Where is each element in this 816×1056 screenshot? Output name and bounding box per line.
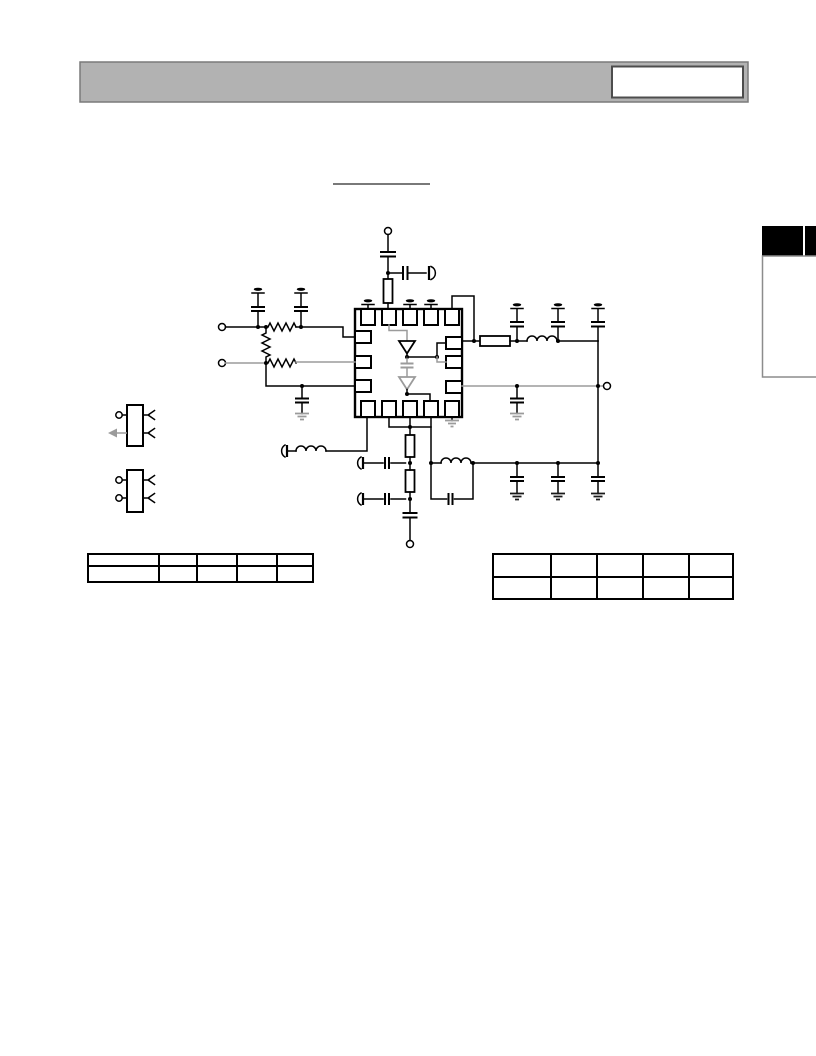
supply-terminal bbox=[385, 228, 392, 235]
page-header bbox=[80, 62, 748, 102]
table-cell bbox=[278, 555, 314, 567]
resistor bbox=[406, 435, 415, 457]
bottom-left-inductor-feed bbox=[282, 417, 367, 457]
shunt-resistor bbox=[262, 327, 270, 363]
table-cell bbox=[644, 555, 690, 578]
resistor bbox=[406, 470, 415, 492]
ic-right-pads bbox=[446, 337, 462, 393]
arrow-icon bbox=[108, 429, 117, 438]
bottom-feed-chain bbox=[358, 417, 431, 548]
table-cell bbox=[198, 567, 238, 583]
output-shunt-capacitor bbox=[510, 386, 524, 420]
ic-package bbox=[355, 296, 474, 417]
series-resistor bbox=[480, 336, 510, 346]
spec-table-right bbox=[492, 553, 734, 600]
section-tab-block bbox=[762, 226, 816, 256]
decoupling-cap-bank-top bbox=[510, 303, 605, 341]
input-bypass-cap-1 bbox=[251, 288, 265, 327]
pin-chevrons bbox=[143, 476, 155, 503]
coupling-cap-branch-2 bbox=[358, 493, 406, 505]
sidebar-box bbox=[763, 256, 816, 377]
pin-terminal bbox=[116, 412, 122, 418]
table-cell bbox=[552, 555, 598, 578]
section-tab bbox=[762, 226, 816, 377]
top-supply-feed bbox=[380, 228, 435, 310]
series-resistor-2 bbox=[268, 359, 296, 367]
input-terminal-1 bbox=[219, 324, 226, 331]
pin-chevrons bbox=[143, 411, 155, 438]
table-cell bbox=[160, 567, 198, 583]
ground-icon bbox=[510, 414, 524, 420]
ic-left-pads bbox=[355, 331, 371, 392]
header-revision-box bbox=[612, 67, 743, 98]
header-connector-1 bbox=[108, 405, 155, 446]
input-terminal-2 bbox=[219, 360, 226, 367]
ground-icon bbox=[445, 421, 459, 427]
spec-table-left bbox=[87, 553, 314, 583]
table-cell bbox=[598, 578, 644, 600]
table-cell bbox=[690, 555, 734, 578]
rf-probe-point bbox=[429, 266, 435, 280]
ic-top-pads bbox=[361, 309, 459, 325]
ground-icon bbox=[295, 414, 309, 420]
ic-bottom-pads bbox=[361, 401, 459, 417]
table-cell bbox=[160, 555, 198, 567]
table-cell bbox=[690, 578, 734, 600]
header-connector-2 bbox=[116, 470, 155, 512]
input-bypass-cap-2 bbox=[294, 288, 308, 327]
lc-tank bbox=[429, 417, 473, 505]
table-cell bbox=[552, 578, 598, 600]
table-cell bbox=[644, 578, 690, 600]
pin-terminal bbox=[116, 495, 122, 501]
table-cell bbox=[238, 567, 278, 583]
input-network bbox=[219, 288, 356, 420]
output-terminal bbox=[604, 383, 611, 390]
ic-ground bbox=[445, 417, 459, 427]
pin-terminal bbox=[116, 477, 122, 483]
rf-inductor bbox=[296, 446, 326, 451]
page-art bbox=[0, 0, 816, 1056]
bias-cap-to-ground bbox=[295, 386, 309, 420]
decoupling-cap-bank-bottom bbox=[510, 463, 605, 500]
tank-inductor bbox=[441, 458, 471, 463]
table-cell bbox=[598, 555, 644, 578]
table-cell bbox=[198, 555, 238, 567]
application-schematic bbox=[108, 228, 611, 548]
table-cell bbox=[494, 555, 552, 578]
series-resistor-1 bbox=[268, 323, 296, 331]
table-cell bbox=[278, 567, 314, 583]
datasheet-page bbox=[0, 0, 816, 1056]
bottom-terminal bbox=[407, 541, 414, 548]
table-cell bbox=[494, 578, 552, 600]
table-cell bbox=[89, 567, 160, 583]
rf-inductor bbox=[527, 336, 557, 341]
supply-flag-icons bbox=[362, 299, 437, 309]
table-cell bbox=[238, 555, 278, 567]
feed-resistor bbox=[384, 279, 393, 303]
coupling-cap-branch-1 bbox=[358, 457, 406, 469]
tank-capacitor bbox=[449, 493, 453, 505]
table-cell bbox=[89, 555, 160, 567]
